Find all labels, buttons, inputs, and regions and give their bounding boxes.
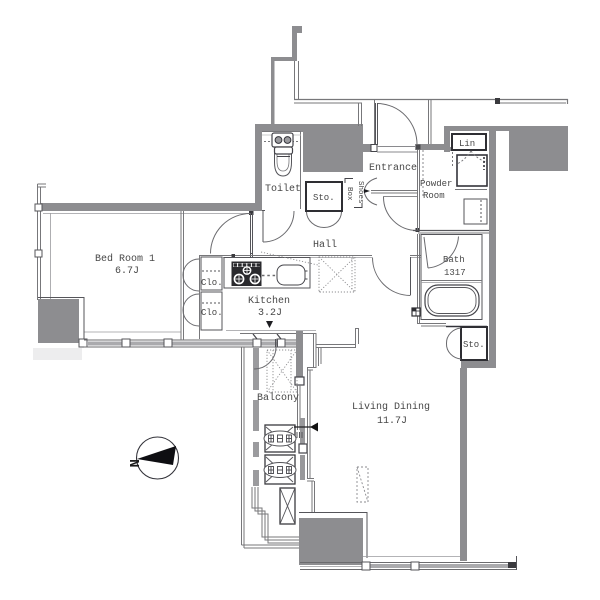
- svg-text:Sto.: Sto.: [313, 193, 335, 203]
- svg-text:Clo.: Clo.: [201, 278, 223, 288]
- svg-text:3.2J: 3.2J: [258, 308, 282, 319]
- svg-text:Bed Room 1: Bed Room 1: [95, 253, 155, 265]
- svg-text:Kitchen: Kitchen: [248, 295, 290, 307]
- svg-text:Shoes: Shoes: [356, 181, 364, 204]
- svg-text:Entrance: Entrance: [369, 163, 417, 174]
- svg-text:Sto.: Sto.: [463, 340, 485, 350]
- svg-text:1317: 1317: [444, 268, 466, 278]
- svg-text:Hall: Hall: [313, 239, 337, 251]
- svg-text:Toilet: Toilet: [265, 183, 301, 195]
- svg-text:N: N: [128, 459, 144, 467]
- svg-text:Box: Box: [345, 187, 353, 201]
- svg-text:6.7J: 6.7J: [115, 266, 139, 277]
- svg-text:Clo.: Clo.: [201, 308, 223, 318]
- svg-text:Powder: Powder: [420, 179, 452, 189]
- svg-text:Living Dining: Living Dining: [352, 401, 430, 413]
- svg-text:Room: Room: [423, 191, 445, 201]
- svg-text:Balcony: Balcony: [257, 392, 299, 404]
- svg-text:Lin: Lin: [459, 139, 475, 149]
- svg-text:11.7J: 11.7J: [377, 416, 407, 427]
